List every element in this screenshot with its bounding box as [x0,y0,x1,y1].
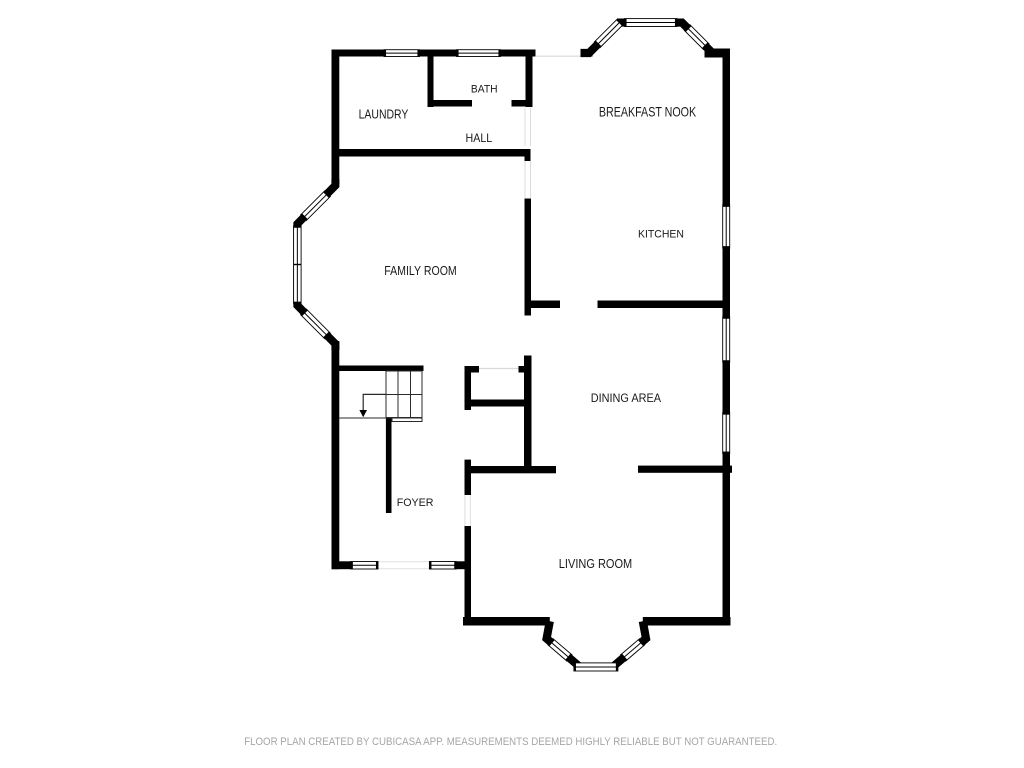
svg-text:LIVING ROOM: LIVING ROOM [559,556,632,571]
svg-text:FAMILY ROOM: FAMILY ROOM [384,263,457,278]
svg-text:LAUNDRY: LAUNDRY [359,107,409,122]
svg-text:BATH: BATH [471,84,498,96]
svg-text:DINING AREA: DINING AREA [591,391,661,405]
svg-text:KITCHEN: KITCHEN [638,229,684,241]
svg-text:HALL: HALL [466,131,493,145]
svg-text:BREAKFAST NOOK: BREAKFAST NOOK [599,104,696,119]
svg-text:FLOOR PLAN CREATED BY CUBICASA: FLOOR PLAN CREATED BY CUBICASA APP. MEAS… [244,736,777,748]
svg-text:FOYER: FOYER [397,497,434,509]
